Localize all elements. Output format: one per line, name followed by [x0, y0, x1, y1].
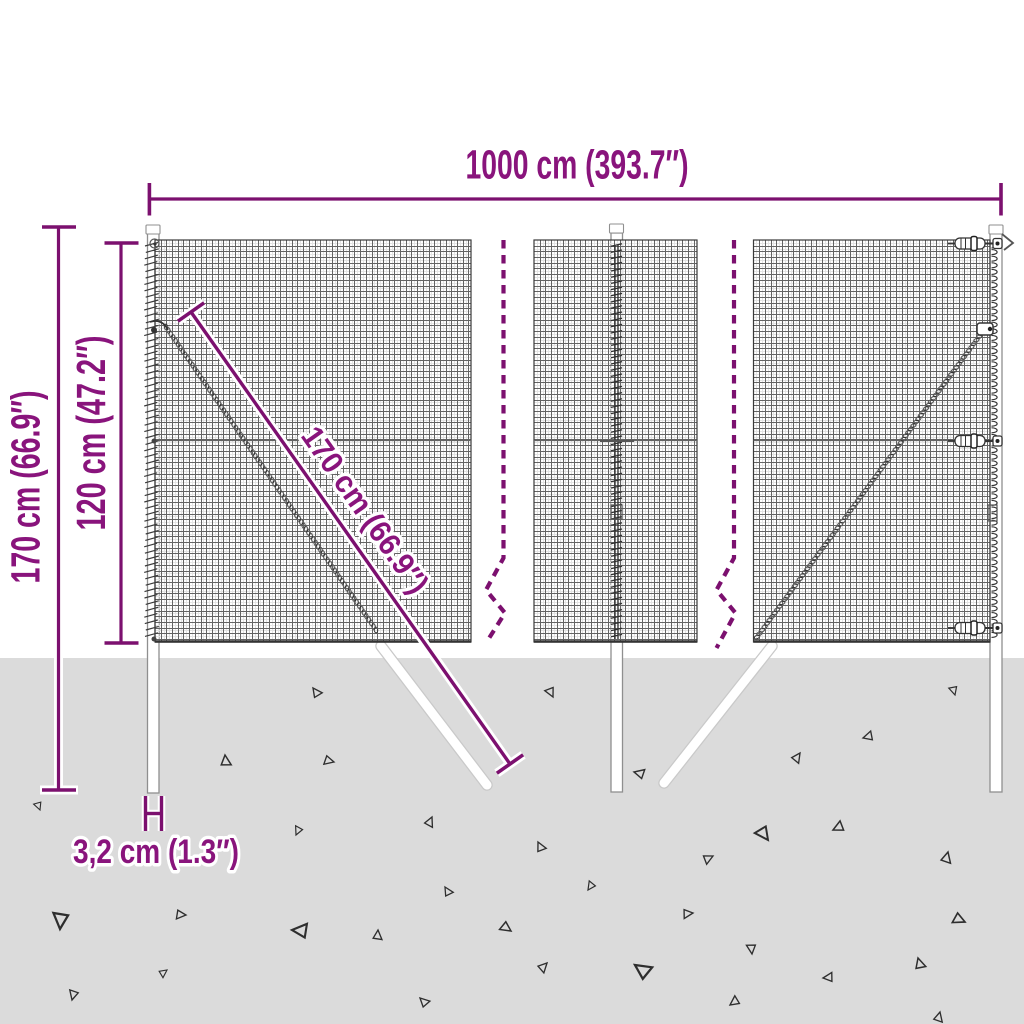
svg-text:120 cm (47.2″): 120 cm (47.2″): [68, 336, 114, 531]
svg-text:3,2 cm (1.3″): 3,2 cm (1.3″): [73, 833, 239, 871]
svg-text:170 cm (66.9″): 170 cm (66.9″): [3, 391, 49, 584]
svg-text:1000 cm (393.7″): 1000 cm (393.7″): [466, 142, 689, 188]
